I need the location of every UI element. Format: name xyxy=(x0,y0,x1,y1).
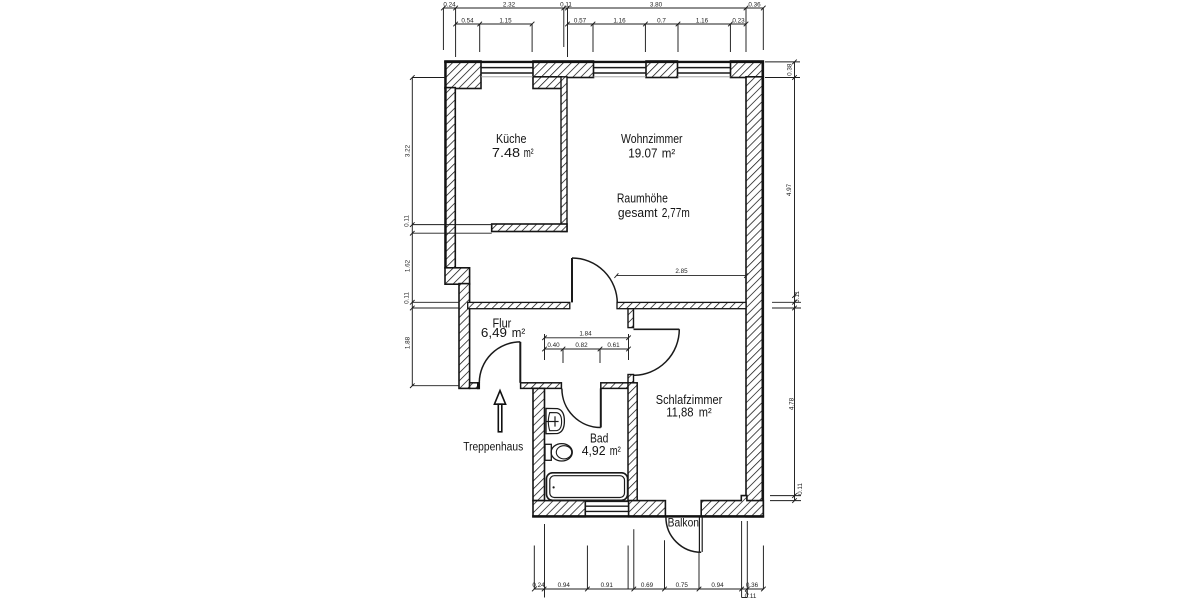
svg-text:6,49: 6,49 xyxy=(481,325,507,340)
svg-text:0.94: 0.94 xyxy=(711,582,724,589)
svg-text:3.22: 3.22 xyxy=(405,144,412,157)
svg-text:0.11: 0.11 xyxy=(797,483,804,495)
svg-text:0.23: 0.23 xyxy=(732,17,745,24)
svg-text:0.24: 0.24 xyxy=(443,1,456,8)
svg-text:1.16: 1.16 xyxy=(613,17,626,24)
svg-text:0.91: 0.91 xyxy=(601,582,614,589)
svg-text:3.80: 3.80 xyxy=(650,1,663,8)
svg-text:gesamt: gesamt xyxy=(618,205,658,220)
svg-text:0.36: 0.36 xyxy=(746,582,759,589)
svg-text:2,77m: 2,77m xyxy=(662,205,690,220)
svg-text:0.54: 0.54 xyxy=(461,17,474,24)
svg-text:0.94: 0.94 xyxy=(558,582,571,589)
svg-text:Raumhöhe: Raumhöhe xyxy=(617,190,668,205)
svg-text:1.16: 1.16 xyxy=(696,17,709,24)
svg-text:19.07: 19.07 xyxy=(628,146,657,161)
svg-text:4.97: 4.97 xyxy=(786,183,793,196)
svg-text:Balkon: Balkon xyxy=(668,516,699,530)
svg-text:0.40: 0.40 xyxy=(547,342,560,349)
svg-text:Küche: Küche xyxy=(496,131,527,146)
svg-text:0.38: 0.38 xyxy=(787,63,794,76)
svg-text:0.82: 0.82 xyxy=(575,342,588,349)
svg-text:0.24: 0.24 xyxy=(532,582,545,589)
svg-text:0.69: 0.69 xyxy=(641,582,654,589)
svg-text:0.61: 0.61 xyxy=(607,342,620,349)
svg-text:0.11: 0.11 xyxy=(745,593,757,600)
svg-text:0.11: 0.11 xyxy=(404,292,411,304)
svg-text:0.36: 0.36 xyxy=(748,1,761,8)
svg-text:1.84: 1.84 xyxy=(579,330,592,337)
svg-text:m²: m² xyxy=(524,145,534,160)
svg-text:m²: m² xyxy=(610,443,621,458)
svg-text:0.57: 0.57 xyxy=(574,17,587,24)
svg-text:m²: m² xyxy=(512,325,526,340)
svg-text:1.88: 1.88 xyxy=(405,336,412,349)
svg-text:m²: m² xyxy=(699,404,712,419)
svg-text:0.11: 0.11 xyxy=(560,1,572,8)
svg-text:2.32: 2.32 xyxy=(503,1,516,8)
svg-text:1.62: 1.62 xyxy=(405,259,412,272)
svg-text:4.78: 4.78 xyxy=(789,397,796,410)
svg-text:4,92: 4,92 xyxy=(582,443,606,458)
svg-text:Treppenhaus: Treppenhaus xyxy=(463,442,523,454)
svg-text:11,88: 11,88 xyxy=(666,404,693,419)
svg-text:m²: m² xyxy=(662,146,676,161)
svg-text:Wohnzimmer: Wohnzimmer xyxy=(621,131,683,146)
svg-text:0.7: 0.7 xyxy=(657,17,666,24)
svg-text:2.85: 2.85 xyxy=(675,268,688,275)
svg-text:7.48: 7.48 xyxy=(492,145,520,160)
svg-text:0.75: 0.75 xyxy=(676,582,689,589)
svg-text:0.11: 0.11 xyxy=(794,291,801,303)
svg-text:1.15: 1.15 xyxy=(499,17,512,24)
svg-text:0.11: 0.11 xyxy=(404,215,411,227)
